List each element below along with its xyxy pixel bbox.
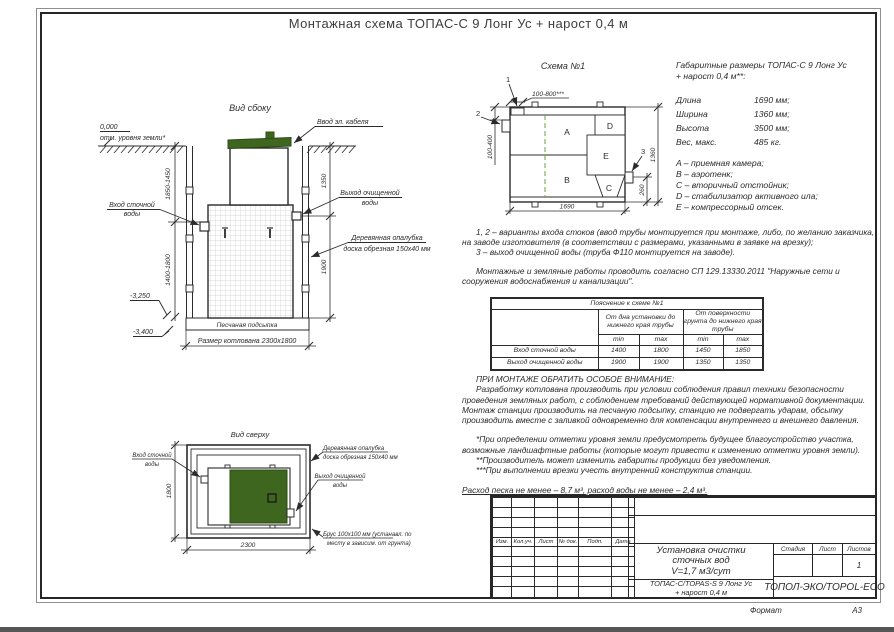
tank bbox=[200, 132, 301, 318]
svg-text:-3,400: -3,400 bbox=[133, 329, 153, 336]
svg-text:1400-1800: 1400-1800 bbox=[165, 254, 172, 286]
legend-item: E – компрессорный отсек. bbox=[676, 202, 882, 213]
compartment-d: D bbox=[607, 121, 613, 131]
svg-text:1360: 1360 bbox=[650, 147, 657, 162]
formwork-label: Деревянная опалубка доска обрезная 150x4… bbox=[311, 234, 431, 257]
marker-1: 1 bbox=[506, 75, 517, 106]
svg-text:-3,250: -3,250 bbox=[130, 293, 150, 300]
svg-text:1900: 1900 bbox=[321, 259, 328, 274]
svg-text:3: 3 bbox=[641, 147, 645, 156]
stamp-box-mid bbox=[628, 515, 875, 543]
svg-text:1850-1450: 1850-1450 bbox=[165, 168, 172, 200]
compartment-a: A bbox=[564, 127, 570, 137]
schema-outlet-pipe bbox=[625, 172, 633, 183]
svg-text:0,000: 0,000 bbox=[100, 124, 118, 131]
legend-item: B – аэротенк; bbox=[676, 169, 882, 180]
table-title: Пояснение к схеме №1 bbox=[491, 298, 763, 309]
svg-text:доска обрезная 150x40 мм: доска обрезная 150x40 мм bbox=[343, 245, 430, 253]
consumption-note: Расход песка не менее – 8,7 м³, расход в… bbox=[462, 485, 878, 495]
svg-text:Выход очищенной: Выход очищенной bbox=[315, 473, 367, 480]
svg-text:доска обрезная 150x40 мм: доска обрезная 150x40 мм bbox=[323, 455, 398, 461]
company-name: ТОПОЛ-ЭКО/TOPOL-ECO bbox=[773, 576, 875, 597]
marker-2: 2 bbox=[476, 109, 500, 124]
top-dim-bottom: 2300 bbox=[181, 538, 316, 554]
explanation-table: Пояснение к схеме №1 От дна установки до… bbox=[490, 297, 764, 371]
attention-note-2: **Производитель может изменить габариты … bbox=[462, 455, 878, 465]
title-block: Изм. Кол.уч. Лист № док. Подп. Дата Уста… bbox=[490, 495, 877, 599]
svg-text:месту в зависим. от грунта): месту в зависим. от грунта) bbox=[327, 541, 411, 547]
page-title: Монтажная схема ТОПАС-С 9 Лонг Ус + наро… bbox=[40, 16, 877, 31]
svg-text:Брус 100x100 мм (устанавл. по: Брус 100x100 мм (устанавл. по bbox=[323, 532, 412, 538]
ground-line bbox=[98, 146, 356, 153]
svg-text:2: 2 bbox=[476, 109, 480, 118]
model-name: ТОПАС-С/TOPAS-S 9 Лонг Ус + нарост 0,4 м bbox=[628, 579, 773, 597]
schema-dim-bottom: 1690 bbox=[505, 202, 630, 215]
attention-note-1: *При определении отметки уровня земли пр… bbox=[462, 434, 878, 455]
spec-row: Высота3500 мм; bbox=[676, 123, 882, 134]
drawing-sheet: Монтажная схема ТОПАС-С 9 Лонг Ус + наро… bbox=[0, 0, 894, 632]
top-view-diagram: Вид сверху Вход сточной воды Деревянная … bbox=[120, 425, 460, 565]
side-view-title: Вид сбоку bbox=[229, 103, 271, 113]
format-value: А3 bbox=[852, 606, 862, 615]
attention-note-3: ***При выполнении врезки учесть внутренн… bbox=[462, 465, 878, 475]
svg-text:воды: воды bbox=[124, 210, 141, 218]
sheets-label: Листов bbox=[842, 543, 875, 554]
spec-row: Ширина1360 мм; bbox=[676, 109, 882, 120]
table-row: Вход сточной воды 14001800 14501850 bbox=[491, 345, 763, 357]
stage-label: Стадия bbox=[773, 543, 812, 554]
green-lid bbox=[228, 138, 291, 149]
sheet-label: Лист bbox=[812, 543, 842, 554]
top-beam-label: Брус 100x100 мм (устанавл. по месту в за… bbox=[312, 529, 412, 547]
top-view-body bbox=[187, 445, 310, 538]
attention-paragraph: Разработку котлована производить при усл… bbox=[462, 384, 878, 425]
doc-description: Установка очистки сточных вод V=1,7 м3/с… bbox=[628, 543, 773, 579]
level-bottom-mark: -3,400 bbox=[133, 326, 173, 337]
compartment-b: B bbox=[564, 175, 570, 185]
svg-text:Деревянная опалубка: Деревянная опалубка bbox=[350, 234, 422, 242]
inlet-label: Вход сточной воды bbox=[107, 201, 199, 225]
outlet-pipe bbox=[292, 212, 301, 220]
specs-block: Габаритные размеры ТОПАС-С 9 Лонг Ус + н… bbox=[676, 60, 882, 213]
marker-3: 3 bbox=[632, 147, 645, 171]
table-group-1: От дна установки до нижнего края трубы bbox=[598, 309, 683, 334]
compartment-c: C bbox=[606, 183, 612, 193]
svg-text:воды: воды bbox=[145, 462, 160, 468]
legend-item: D – стабилизатор активного ила; bbox=[676, 191, 882, 202]
table-group-2: От поверхности грунта до нижнего края тр… bbox=[683, 309, 763, 334]
specs-heading-2: + нарост 0,4 м**: bbox=[676, 71, 882, 82]
svg-text:1: 1 bbox=[506, 75, 510, 84]
svg-text:Вход сточной: Вход сточной bbox=[109, 201, 155, 209]
svg-text:Ввод эл. кабеля: Ввод эл. кабеля bbox=[317, 118, 369, 126]
svg-text:Размер котлована 2300x1800: Размер котлована 2300x1800 bbox=[198, 338, 297, 345]
rev-col-ndok: № док. bbox=[558, 538, 579, 547]
outlet-label: Выход очищенной воды bbox=[303, 189, 402, 214]
spec-row: Длина1690 мм; bbox=[676, 95, 882, 106]
rev-col-koluch: Кол.уч. bbox=[512, 538, 535, 547]
svg-text:воды: воды bbox=[362, 199, 379, 207]
rev-col-list: Лист bbox=[535, 538, 558, 547]
attention-heading: ПРИ МОНТАЖЕ ОБРАТИТЬ ОСОБОЕ ВНИМАНИЕ: bbox=[462, 374, 878, 384]
pit-size-dim: Размер котлована 2300x1800 bbox=[180, 330, 316, 350]
note-works: Монтажные и земляные работы проводить со… bbox=[462, 266, 878, 286]
legend-item: C – вторичный отстойник; bbox=[676, 180, 882, 191]
svg-text:1800: 1800 bbox=[166, 483, 173, 498]
note-variants: 1, 2 – варианты входа стоков (ввод трубы… bbox=[462, 227, 878, 247]
svg-text:1690: 1690 bbox=[560, 204, 575, 211]
svg-text:отм. уровня земли*: отм. уровня земли* bbox=[100, 135, 165, 142]
dim-right: 1350 1900 bbox=[293, 142, 336, 322]
notes-block: 1, 2 – варианты входа стоков (ввод трубы… bbox=[462, 227, 878, 286]
schema-dim-left: 100-400 bbox=[487, 103, 510, 165]
top-view-title: Вид сверху bbox=[231, 430, 271, 439]
schema-diagram: Схема №1 A B C D E 1 2 bbox=[465, 55, 680, 220]
svg-text:2300: 2300 bbox=[240, 542, 256, 549]
svg-text:Выход очищенной: Выход очищенной bbox=[340, 189, 399, 197]
format-label: Формат bbox=[750, 606, 782, 615]
top-green-lid bbox=[230, 470, 287, 523]
top-inlet bbox=[201, 476, 208, 483]
inlet-pipe bbox=[200, 222, 209, 231]
legend-item: A – приемная камера; bbox=[676, 158, 882, 169]
svg-text:Деревянная опалубка: Деревянная опалубка bbox=[322, 446, 385, 452]
sand-label: Песчаная подсыпка bbox=[217, 321, 278, 329]
specs-heading-1: Габаритные размеры ТОПАС-С 9 Лонг Ус bbox=[676, 60, 882, 71]
schema-body bbox=[502, 102, 633, 207]
compartment-e: E bbox=[603, 151, 609, 161]
svg-text:100-400: 100-400 bbox=[487, 135, 494, 160]
dim-left: 1850-1450 1400-1800 bbox=[165, 142, 200, 321]
table-row: Выход очищенной воды 19001900 13501350 bbox=[491, 357, 763, 370]
bottom-bar bbox=[0, 627, 894, 632]
schema-title: Схема №1 bbox=[541, 61, 585, 71]
svg-text:100-800***: 100-800*** bbox=[532, 91, 564, 98]
top-outlet bbox=[287, 509, 294, 517]
format-note: Формат А3 bbox=[750, 606, 862, 615]
svg-text:260: 260 bbox=[639, 184, 646, 196]
sheets-value: 1 bbox=[842, 554, 875, 576]
attention-block: ПРИ МОНТАЖЕ ОБРАТИТЬ ОСОБОЕ ВНИМАНИЕ: Ра… bbox=[462, 374, 878, 495]
side-view-diagram: Вид сбоку bbox=[60, 95, 455, 360]
top-formwork-label: Деревянная опалубка доска обрезная 150x4… bbox=[311, 446, 398, 461]
revision-table: Изм. Кол.уч. Лист № док. Подп. Дата bbox=[492, 497, 635, 598]
stamp-box-top bbox=[628, 497, 875, 515]
ground-level-mark: 0,000 отм. уровня земли* bbox=[100, 124, 165, 146]
schema-inlet-pipe bbox=[502, 120, 510, 132]
spec-row: Вес, макс.485 кг. bbox=[676, 137, 882, 148]
note-outlet: 3 – выход очищенной воды (труба Ф110 мон… bbox=[462, 247, 878, 257]
level-sand-mark: -3,250 bbox=[130, 293, 171, 319]
svg-text:Вход сточной: Вход сточной bbox=[132, 452, 172, 459]
svg-text:1350: 1350 bbox=[321, 173, 328, 188]
rev-col-podp: Подп. bbox=[579, 538, 612, 547]
rev-col-izm: Изм. bbox=[493, 538, 512, 547]
cable-entry-label: Ввод эл. кабеля bbox=[294, 118, 383, 143]
svg-text:воды: воды bbox=[333, 483, 348, 489]
